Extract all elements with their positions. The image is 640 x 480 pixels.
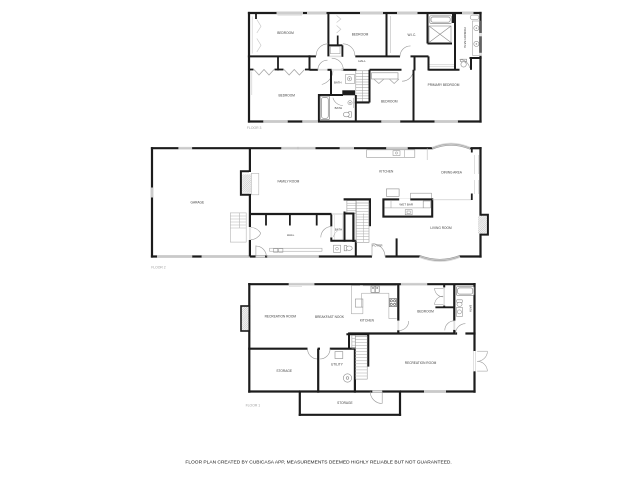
- svg-text:BEDROOM: BEDROOM: [352, 32, 369, 36]
- svg-text:W.I.C.: W.I.C.: [408, 33, 417, 37]
- svg-text:BATH: BATH: [334, 81, 342, 85]
- svg-text:FOYER: FOYER: [373, 244, 383, 248]
- svg-text:WET BAR: WET BAR: [399, 203, 413, 207]
- svg-text:FLOOR 3: FLOOR 3: [247, 126, 262, 130]
- svg-text:GARAGE: GARAGE: [190, 201, 204, 205]
- svg-text:BREAKFAST NOOK: BREAKFAST NOOK: [315, 315, 345, 319]
- svg-text:BATH: BATH: [335, 106, 343, 110]
- svg-text:KITCHEN: KITCHEN: [360, 319, 375, 323]
- svg-text:FAMILY ROOM: FAMILY ROOM: [277, 180, 299, 184]
- svg-text:BEDROOM: BEDROOM: [381, 99, 398, 103]
- svg-text:BEDROOM: BEDROOM: [417, 309, 434, 313]
- svg-text:LIVING ROOM: LIVING ROOM: [430, 226, 452, 230]
- svg-text:STORAGE: STORAGE: [276, 369, 292, 373]
- svg-text:FLOOR PLAN CREATED BY CUBICASA: FLOOR PLAN CREATED BY CUBICASA APP, MEAS…: [185, 459, 451, 465]
- svg-text:KITCHEN: KITCHEN: [379, 170, 394, 174]
- svg-text:BATH: BATH: [469, 305, 473, 312]
- svg-text:PRIMARY BEDROOM: PRIMARY BEDROOM: [428, 83, 460, 87]
- svg-text:UTILITY: UTILITY: [331, 363, 344, 367]
- svg-text:RECREATION ROOM: RECREATION ROOM: [405, 361, 437, 365]
- svg-text:BEDROOM: BEDROOM: [277, 31, 294, 35]
- svg-text:PRIMARY BATH: PRIMARY BATH: [463, 27, 467, 48]
- svg-text:HALL: HALL: [358, 59, 366, 63]
- svg-text:BEDROOM: BEDROOM: [278, 94, 295, 98]
- svg-text:BATH: BATH: [335, 227, 342, 231]
- svg-text:DINING AREA: DINING AREA: [441, 171, 462, 175]
- svg-text:STORAGE: STORAGE: [337, 401, 353, 405]
- svg-text:FLOOR 1: FLOOR 1: [246, 404, 261, 408]
- svg-text:HALL: HALL: [287, 233, 295, 237]
- svg-text:FLOOR 2: FLOOR 2: [151, 266, 166, 270]
- svg-text:RECREATION ROOM: RECREATION ROOM: [265, 315, 297, 319]
